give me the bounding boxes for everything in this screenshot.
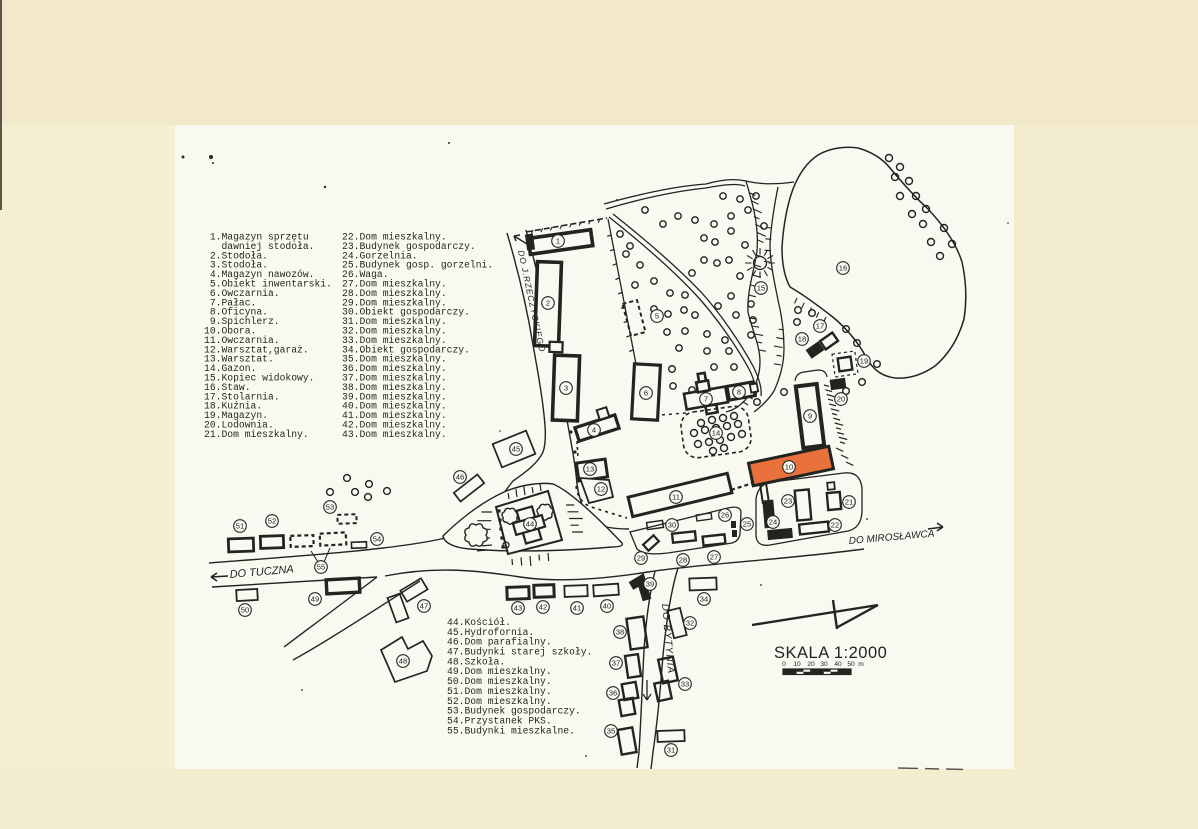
- svg-text:32: 32: [686, 619, 694, 628]
- svg-text:21: 21: [845, 498, 853, 507]
- svg-text:49: 49: [311, 595, 319, 604]
- svg-text:50: 50: [241, 606, 249, 615]
- svg-text:11: 11: [672, 493, 680, 502]
- svg-text:26: 26: [721, 511, 729, 520]
- svg-text:2: 2: [546, 299, 550, 308]
- svg-text:9: 9: [808, 412, 812, 421]
- svg-text:15: 15: [757, 284, 765, 293]
- svg-text:4: 4: [592, 426, 596, 435]
- svg-text:7: 7: [704, 395, 708, 404]
- svg-text:28: 28: [679, 556, 687, 565]
- svg-text:40: 40: [834, 661, 842, 668]
- svg-text:43: 43: [514, 604, 522, 613]
- svg-text:55.Budynki mieszkalne.: 55.Budynki mieszkalne.: [447, 725, 575, 736]
- svg-text:25: 25: [743, 520, 751, 529]
- svg-text:3: 3: [564, 384, 568, 393]
- svg-text:29: 29: [637, 554, 645, 563]
- svg-text:42: 42: [539, 603, 547, 612]
- svg-text:0: 0: [782, 661, 786, 668]
- svg-text:37: 37: [612, 659, 620, 668]
- svg-text:5: 5: [655, 312, 659, 321]
- svg-text:54: 54: [373, 535, 381, 544]
- svg-text:10: 10: [793, 661, 801, 668]
- svg-text:48: 48: [399, 657, 407, 666]
- svg-text:55: 55: [317, 563, 325, 572]
- svg-text:23: 23: [784, 497, 792, 506]
- svg-text:18: 18: [798, 335, 806, 344]
- svg-text:53: 53: [326, 503, 334, 512]
- svg-text:30: 30: [668, 521, 676, 530]
- svg-text:52: 52: [268, 517, 276, 526]
- svg-text:12: 12: [597, 485, 605, 494]
- svg-text:20: 20: [837, 395, 845, 404]
- svg-text:35: 35: [607, 727, 615, 736]
- svg-text:50: 50: [847, 661, 855, 668]
- svg-text:6: 6: [644, 389, 648, 398]
- svg-text:m: m: [858, 661, 864, 668]
- svg-text:24: 24: [769, 518, 777, 527]
- svg-text:44: 44: [526, 520, 534, 529]
- svg-text:43.Dom mieszkalny.: 43.Dom mieszkalny.: [342, 429, 447, 440]
- svg-text:SKALA 1:2000: SKALA 1:2000: [774, 644, 887, 662]
- svg-text:8: 8: [737, 388, 741, 397]
- svg-text:31: 31: [667, 746, 675, 755]
- svg-text:19: 19: [860, 357, 868, 366]
- svg-text:51: 51: [236, 522, 244, 531]
- svg-text:17: 17: [816, 322, 824, 331]
- svg-text:14: 14: [712, 429, 720, 438]
- svg-text:1: 1: [556, 237, 560, 246]
- svg-text:40: 40: [603, 602, 611, 611]
- svg-text:39: 39: [646, 580, 654, 589]
- svg-text:46: 46: [456, 473, 464, 482]
- svg-text:13: 13: [586, 465, 594, 474]
- svg-text:33: 33: [681, 680, 689, 689]
- svg-text:47: 47: [420, 602, 428, 611]
- svg-text:30: 30: [820, 661, 828, 668]
- svg-text:36: 36: [609, 689, 617, 698]
- svg-text:22: 22: [831, 521, 839, 530]
- svg-text:27: 27: [710, 553, 718, 562]
- svg-text:45: 45: [512, 445, 520, 454]
- svg-text:34: 34: [700, 595, 708, 604]
- svg-text:10: 10: [785, 463, 793, 472]
- svg-text:41: 41: [573, 604, 581, 613]
- svg-text:38: 38: [616, 628, 624, 637]
- svg-text:20: 20: [807, 661, 815, 668]
- svg-text:21.Dom mieszkalny.: 21.Dom mieszkalny.: [204, 429, 309, 440]
- svg-text:16: 16: [839, 264, 847, 273]
